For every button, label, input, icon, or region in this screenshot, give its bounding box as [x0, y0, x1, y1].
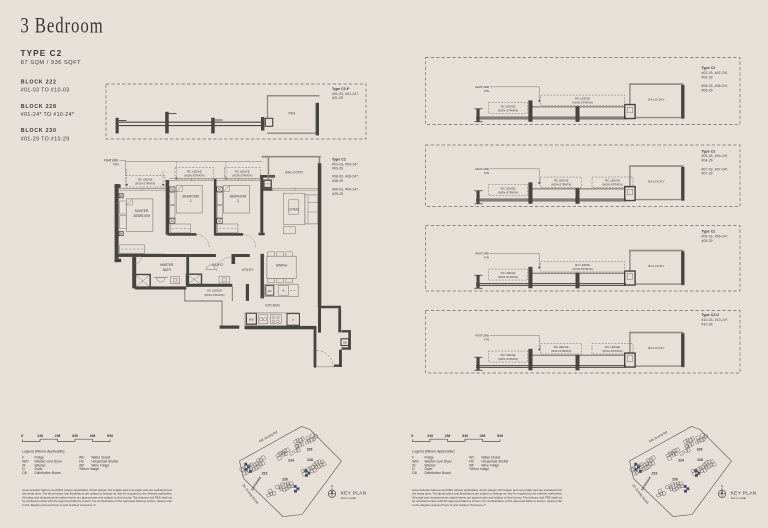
svg-text:#05-03, #05-24*,: #05-03, #05-24*, — [702, 234, 729, 238]
svg-text:(NON-STRATA): (NON-STRATA) — [184, 174, 204, 178]
svg-text:Type C2: Type C2 — [332, 158, 346, 162]
svg-text:(NON-STRATA): (NON-STRATA) — [232, 174, 252, 178]
svg-text:BATH 2: BATH 2 — [212, 263, 223, 267]
svg-text:BEDROOM: BEDROOM — [133, 214, 150, 218]
svg-text:Type C2: Type C2 — [702, 149, 716, 153]
svg-text:BLOCK 228: BLOCK 228 — [21, 104, 57, 110]
svg-text:Type C2: Type C2 — [702, 66, 716, 70]
svg-text:87 SQM / 936 SQFT: 87 SQM / 936 SQFT — [21, 60, 81, 66]
svg-text:#07-03, #07-24*,: #07-03, #07-24*, — [702, 167, 729, 171]
svg-text:LIVING: LIVING — [288, 208, 299, 212]
svg-text:#04-03, #04-24*,: #04-03, #04-24*, — [702, 154, 729, 158]
svg-text:Type C2-P: Type C2-P — [332, 87, 350, 91]
svg-text:F: F — [292, 318, 294, 322]
svg-text:Type C2-U: Type C2-U — [702, 313, 720, 317]
svg-text:#01-24* TO #10-24*: #01-24* TO #10-24* — [21, 112, 75, 118]
svg-text:2: 2 — [190, 199, 192, 203]
svg-text:FIN: FIN — [113, 163, 119, 167]
svg-text:#06-03, #06-24*,: #06-03, #06-24*, — [702, 84, 729, 88]
svg-text:MASTER: MASTER — [160, 263, 174, 267]
svg-text:#01-03, #01-24*,: #01-03, #01-24*, — [332, 92, 359, 96]
svg-text:#08-03, #08-24*,: #08-03, #08-24*, — [332, 175, 359, 179]
svg-text:#05-29: #05-29 — [702, 239, 713, 243]
svg-text:(NON-STRATA): (NON-STRATA) — [204, 293, 224, 297]
svg-text:#09-29: #09-29 — [332, 192, 343, 196]
svg-text:#06-29: #06-29 — [702, 89, 713, 93]
svg-text:TYPE C2: TYPE C2 — [21, 49, 63, 58]
svg-text:3 Bedroom: 3 Bedroom — [20, 13, 103, 38]
svg-text:#01-29 TO #10-29: #01-29 TO #10-29 — [21, 136, 70, 142]
svg-text:3: 3 — [237, 199, 239, 203]
svg-text:WF: WF — [268, 290, 272, 293]
svg-text:UTILITY: UTILITY — [242, 268, 255, 272]
svg-text:#09-03, #09-24*,: #09-03, #09-24*, — [332, 188, 359, 192]
svg-text:MASTER: MASTER — [135, 209, 149, 213]
svg-text:BEDROOM: BEDROOM — [182, 194, 199, 198]
svg-text:#03-03, #03-24*,: #03-03, #03-24*, — [332, 162, 359, 166]
svg-text:#02-29: #02-29 — [702, 75, 713, 79]
svg-text:#10-29: #10-29 — [702, 322, 713, 326]
svg-text:DINING: DINING — [276, 263, 288, 267]
svg-text:#08-29: #08-29 — [332, 179, 343, 183]
svg-text:BEDROOM: BEDROOM — [230, 194, 247, 198]
svg-text:(NON-STRATA): (NON-STRATA) — [135, 182, 155, 186]
svg-text:KITCHEN: KITCHEN — [266, 303, 281, 307]
svg-text:BLOCK 230: BLOCK 230 — [21, 128, 57, 134]
svg-text:BALCONY: BALCONY — [285, 171, 304, 175]
svg-text:#03-29: #03-29 — [332, 167, 343, 171]
svg-text:W/D: W/D — [249, 317, 254, 321]
svg-text:PES: PES — [288, 112, 296, 116]
svg-text:Type C2: Type C2 — [702, 230, 716, 234]
svg-text:#02-03, #02-24*,: #02-03, #02-24*, — [702, 71, 729, 75]
svg-text:DB: DB — [343, 340, 347, 344]
svg-text:BATH: BATH — [163, 268, 172, 272]
svg-text:#07-29: #07-29 — [702, 172, 713, 176]
svg-text:#04-29: #04-29 — [702, 159, 713, 163]
svg-text:#01-29: #01-29 — [332, 96, 343, 100]
svg-text:BLOCK 222: BLOCK 222 — [21, 79, 57, 85]
svg-text:#10-03, #10-24*,: #10-03, #10-24*, — [702, 318, 729, 322]
svg-text:#01-03 TO #10-03: #01-03 TO #10-03 — [21, 88, 70, 94]
